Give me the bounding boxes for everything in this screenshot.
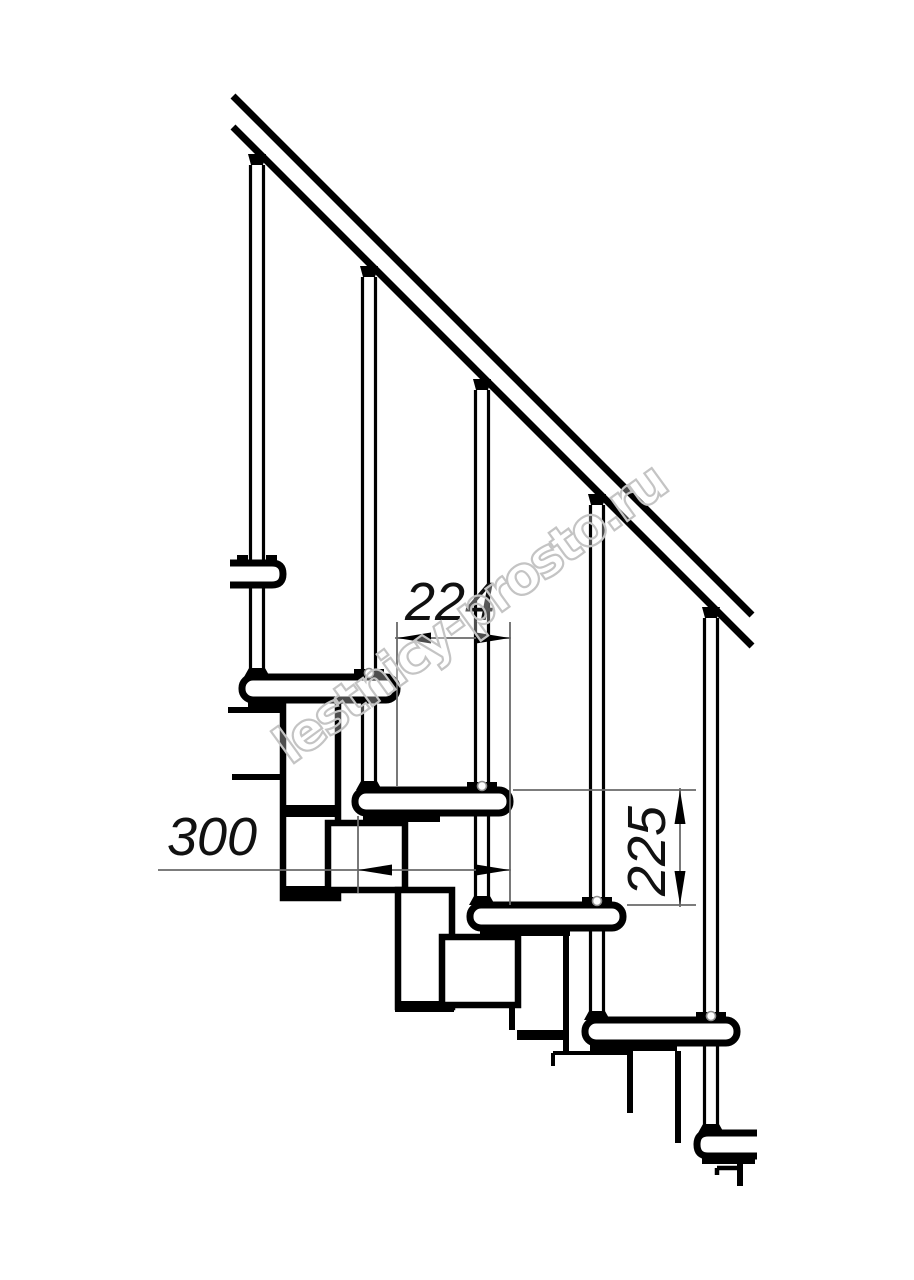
baluster-5 xyxy=(705,618,718,1124)
support-block-below-module-3 xyxy=(517,1030,563,1040)
tread-4 xyxy=(585,1020,737,1043)
handrail-upper-line xyxy=(233,96,752,615)
baluster-4-foot xyxy=(584,1011,610,1020)
support-module-2 xyxy=(328,823,405,890)
dim-label-rise: 225 xyxy=(617,805,677,897)
support-cut-lines-5 xyxy=(717,1164,740,1186)
staircase-technical-drawing: 224 300 225 lestnicy-prosto.ru xyxy=(0,0,914,1280)
baluster-4 xyxy=(591,505,604,1011)
tread-3 xyxy=(470,905,623,928)
dim-label-depth: 300 xyxy=(167,807,257,867)
baluster-1 xyxy=(251,165,264,668)
tread-5-partial xyxy=(697,1133,757,1156)
support-chain xyxy=(228,698,755,1186)
baluster-5-foot xyxy=(698,1124,724,1133)
tread-2 xyxy=(355,790,510,813)
support-module-3 xyxy=(442,937,518,1005)
baluster-2-foot xyxy=(356,781,382,790)
watermark-text: lestnicy-prosto.ru xyxy=(263,452,677,776)
drawing-canvas: 224 300 225 lestnicy-prosto.ru xyxy=(0,0,914,1280)
support-column-1-flange xyxy=(281,805,340,817)
tread-upper-landing-partial xyxy=(230,563,283,585)
baluster-3-foot xyxy=(469,896,495,905)
support-thin-cut-lines-3 xyxy=(553,1053,632,1066)
baluster-1-foot xyxy=(244,668,270,677)
